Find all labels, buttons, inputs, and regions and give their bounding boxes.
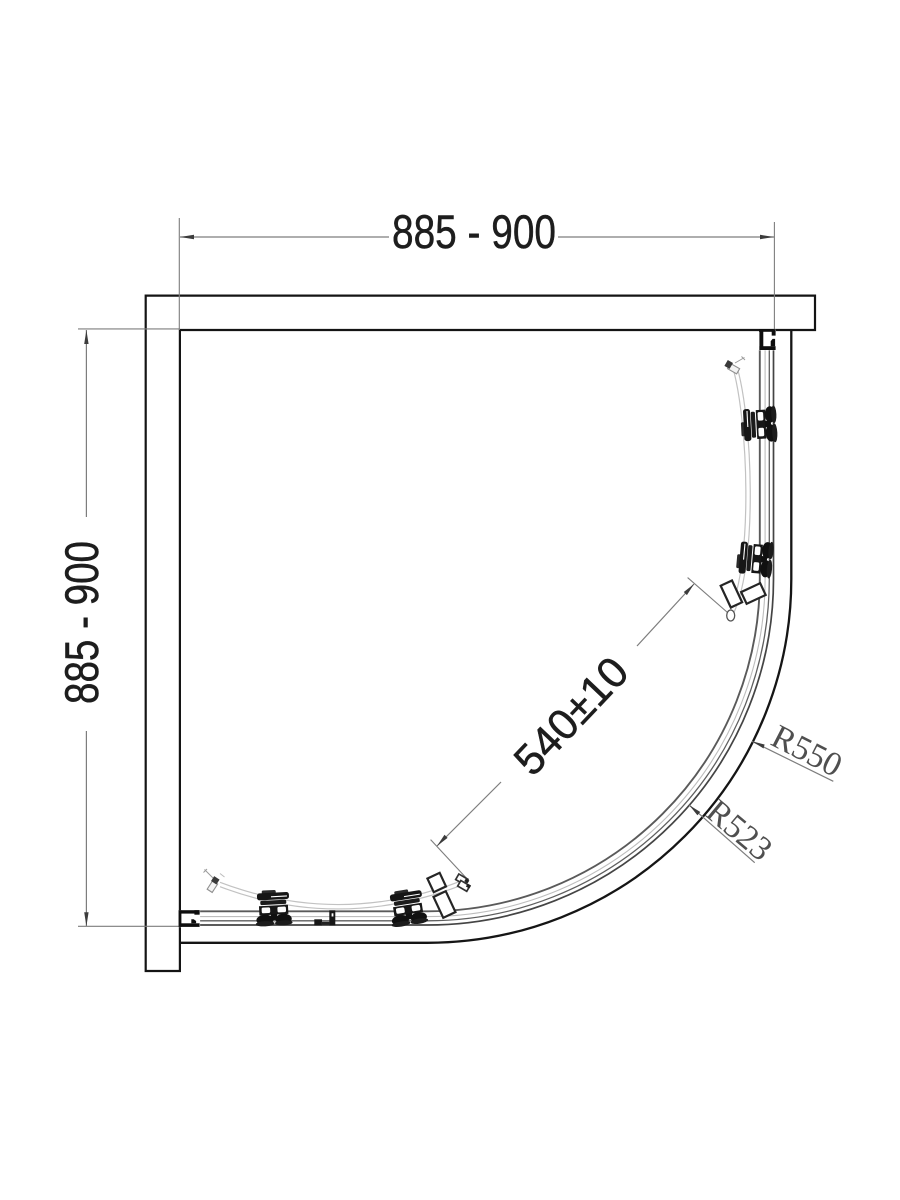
svg-text:885 - 900: 885 - 900 xyxy=(55,541,108,704)
svg-text:885 - 900: 885 - 900 xyxy=(392,205,556,258)
